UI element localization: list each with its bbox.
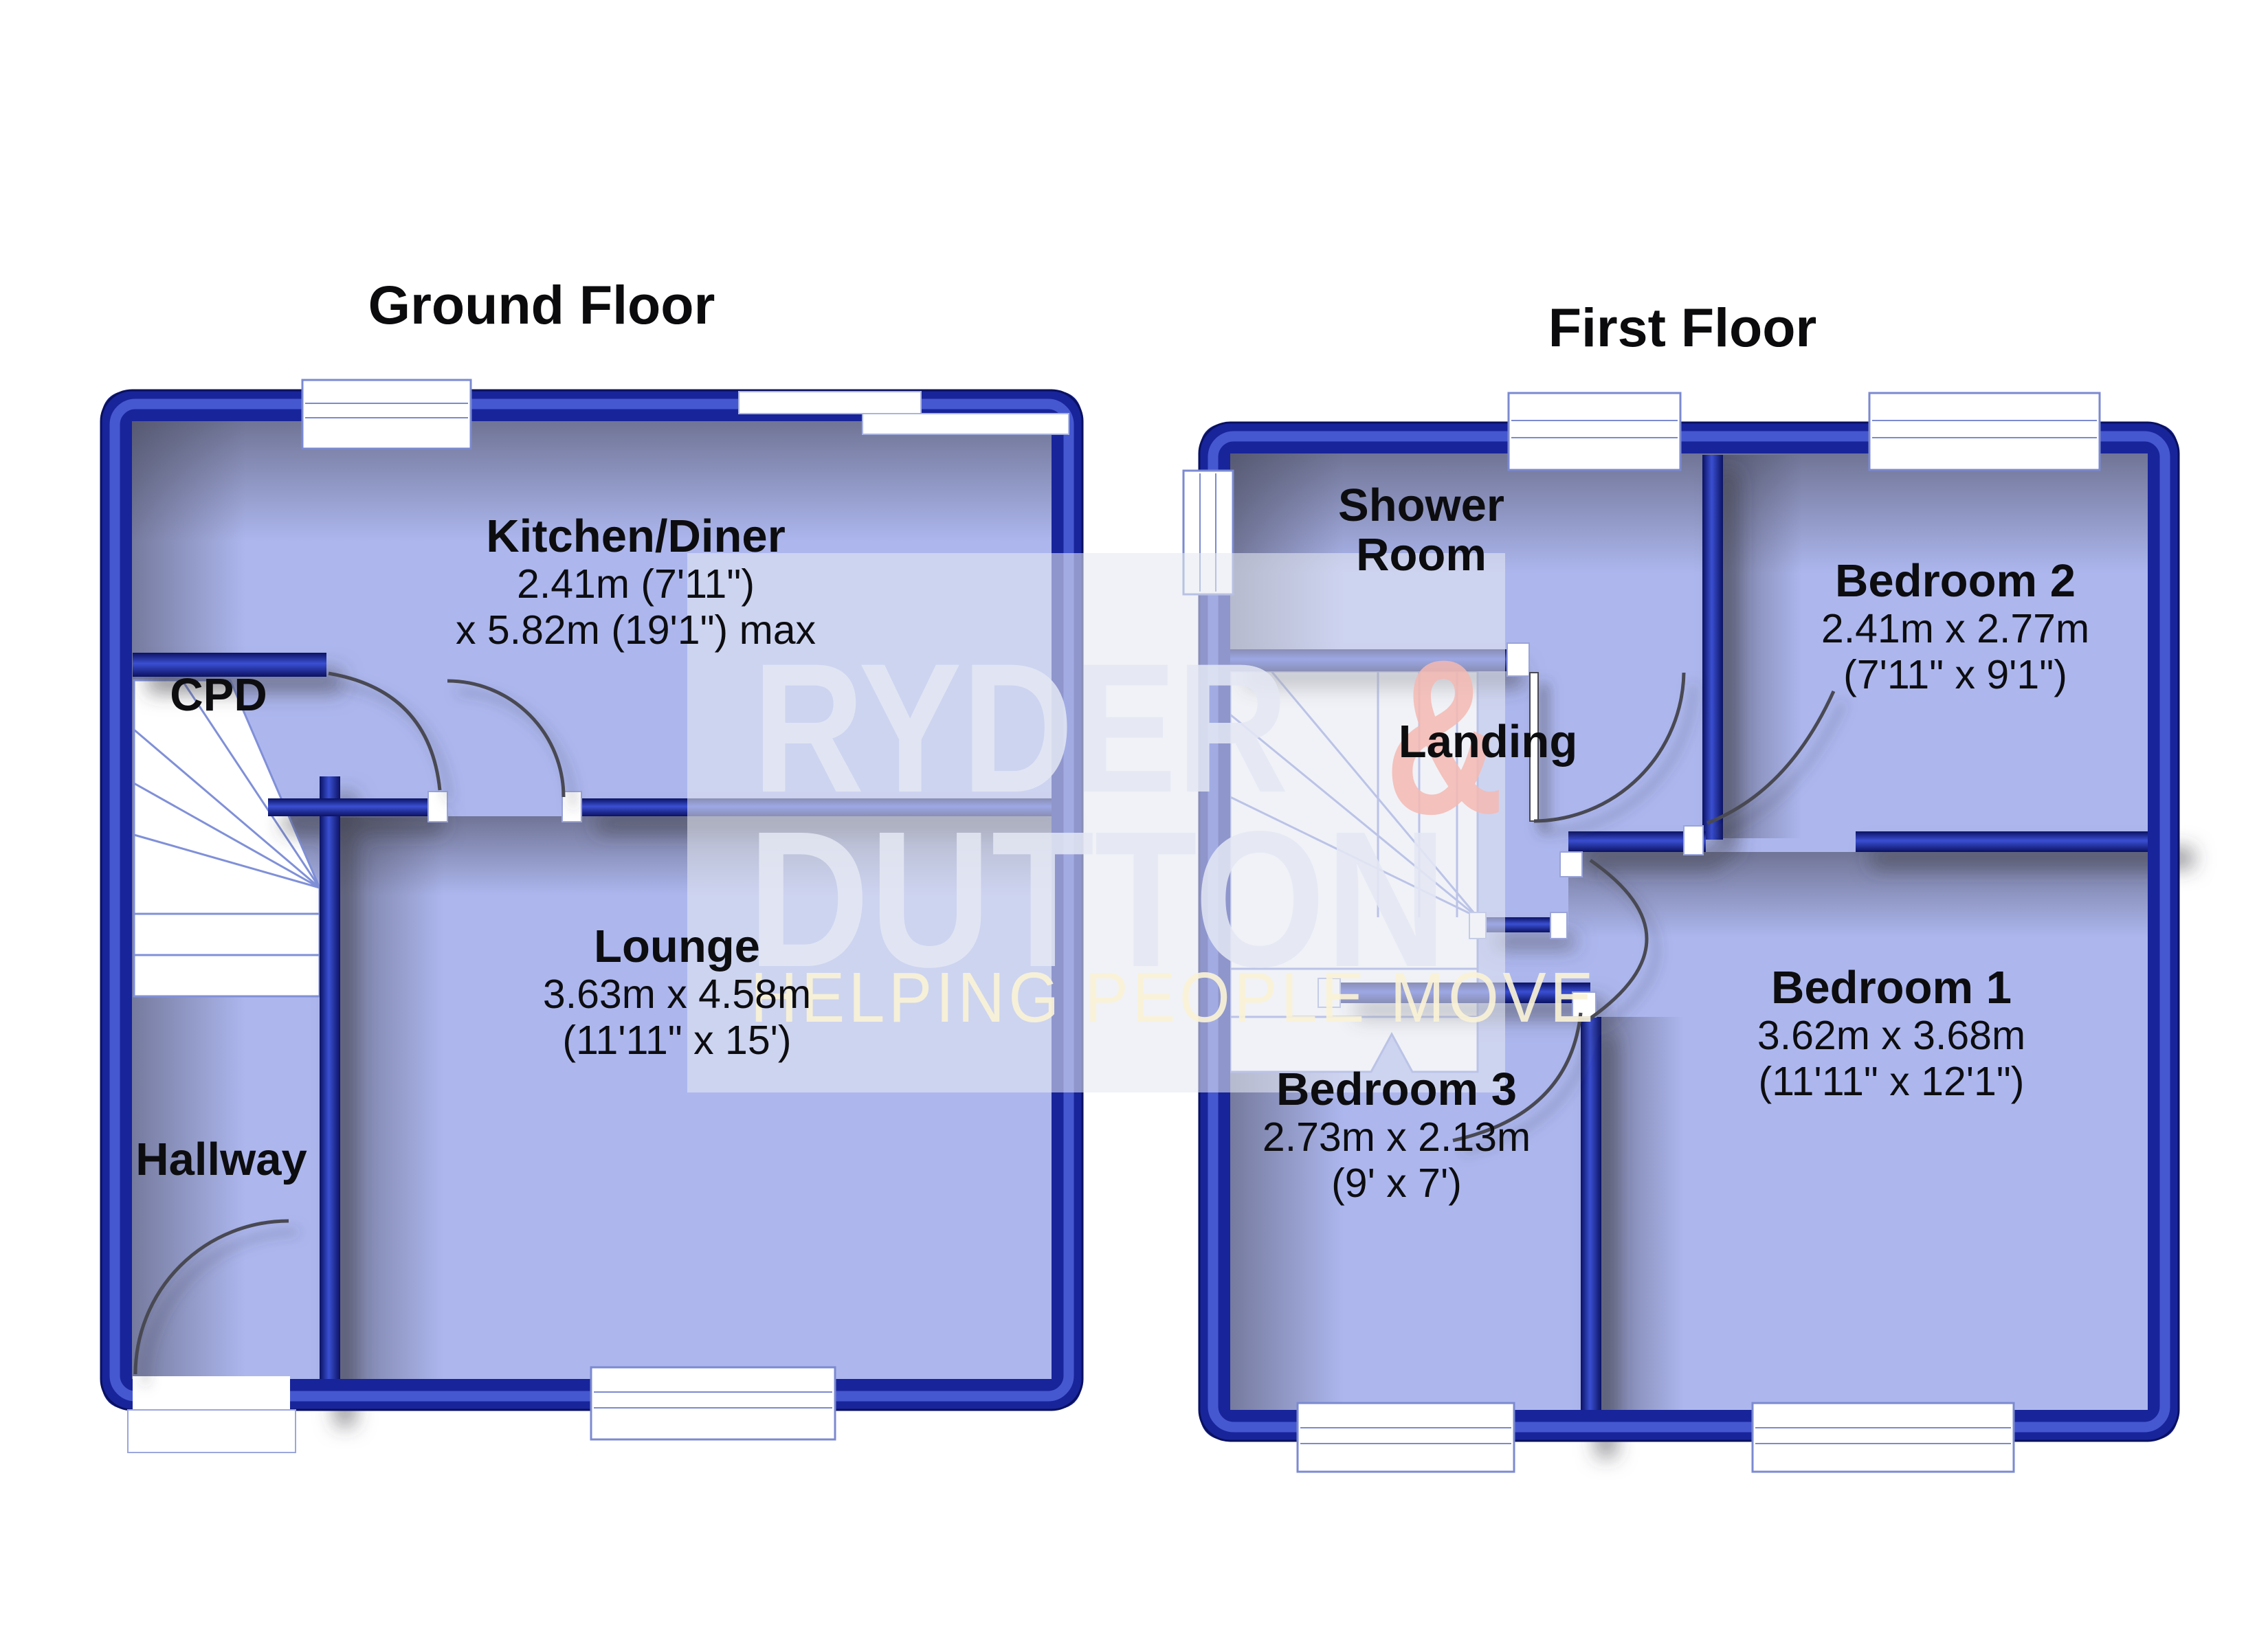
- room-dimension: 3.62m x 3.68m: [1757, 1013, 2025, 1059]
- bed2-window: [1869, 393, 2100, 470]
- door-jamb: [1560, 852, 1582, 877]
- floorplan-page: RYDER & DUTTON HELPING PEOPLE MOVE Groun…: [0, 0, 2268, 1649]
- bed3-window: [1298, 1403, 1514, 1472]
- room-dimension: (11'11" x 15'): [543, 1018, 811, 1064]
- door-jamb: [1507, 643, 1529, 676]
- bed3-wall-shadow: [1601, 1017, 1684, 1439]
- patio-door-panel: [863, 414, 1069, 434]
- door-jamb: [428, 792, 447, 822]
- room-name: Bedroom 2: [1821, 557, 2089, 606]
- watermark-tagline: HELPING PEOPLE MOVE: [751, 962, 1597, 1033]
- room-label-bedroom3: Bedroom 3 2.73m x 2.13m (9' x 7'): [1263, 1065, 1531, 1207]
- hallway-wall-shadow: [340, 818, 443, 1395]
- bed2-wall-shadow: [1723, 455, 1802, 838]
- room-dimension: (11'11" x 12'1"): [1757, 1059, 2025, 1105]
- bed3-bed1-wall: [1581, 1017, 1601, 1441]
- room-name: CPD: [170, 671, 267, 720]
- room-label-hallway: Hallway: [135, 1135, 307, 1185]
- room-dimension: (9' x 7'): [1263, 1160, 1531, 1207]
- front-door-opening: [133, 1376, 290, 1410]
- banister-post: [1550, 912, 1567, 939]
- bed1-top-wall-right: [1856, 831, 2179, 852]
- bed1-wall-shadow: [1568, 852, 2179, 938]
- room-label-cpd: CPD: [170, 671, 267, 720]
- room-name: Kitchen/Diner: [456, 512, 816, 561]
- shower-window: [1509, 393, 1680, 470]
- room-name: Hallway: [135, 1135, 307, 1185]
- room-label-lounge: Lounge 3.63m x 4.58m (11'11" x 15'): [543, 922, 811, 1064]
- room-dimension: 3.63m x 4.58m: [543, 972, 811, 1018]
- hallway-lounge-wall: [320, 776, 340, 1410]
- first-floor-title: First Floor: [1548, 296, 1817, 359]
- room-dimension: (7'11" x 9'1"): [1821, 652, 2089, 698]
- door-jamb: [1684, 826, 1703, 855]
- front-door-threshold: [128, 1410, 296, 1452]
- room-label-kitchen: Kitchen/Diner 2.41m (7'11") x 5.82m (19'…: [456, 512, 816, 653]
- room-label-bedroom2: Bedroom 2 2.41m x 2.77m (7'11" x 9'1"): [1821, 557, 2089, 698]
- kitchen-lounge-wall-left: [268, 798, 430, 816]
- lounge-window: [591, 1367, 835, 1439]
- room-name: Landing: [1399, 717, 1578, 767]
- kitchen-window: [302, 380, 471, 449]
- room-name: Bedroom 3: [1263, 1065, 1531, 1114]
- room-dimension: x 5.82m (19'1") max: [456, 607, 816, 653]
- room-dimension: 2.41m (7'11"): [456, 561, 816, 607]
- room-dimension: 2.41m x 2.77m: [1821, 606, 2089, 652]
- room-name: Lounge: [543, 922, 811, 972]
- room-label-shower-room: Shower Room: [1301, 481, 1542, 581]
- bed1-window: [1753, 1403, 2014, 1472]
- room-label-bedroom1: Bedroom 1 3.62m x 3.68m (11'11" x 12'1"): [1757, 963, 2025, 1105]
- room-label-landing: Landing: [1399, 717, 1578, 767]
- room-name: Bedroom 1: [1757, 963, 2025, 1013]
- room-dimension: 2.73m x 2.13m: [1263, 1114, 1531, 1160]
- room-name: Shower Room: [1301, 481, 1542, 581]
- patio-door-panel: [739, 392, 921, 414]
- shower-bed2-wall: [1702, 455, 1723, 840]
- ground-floor-title: Ground Floor: [368, 273, 715, 337]
